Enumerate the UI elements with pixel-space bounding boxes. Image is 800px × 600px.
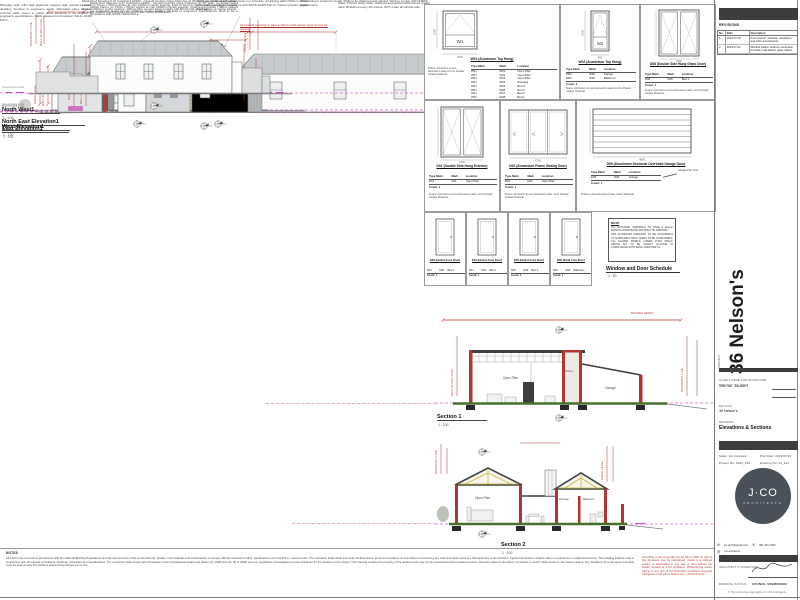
architect-signature	[750, 560, 794, 576]
signature-line	[772, 389, 796, 390]
dim-wallplate-level: WALL PLATE LEVEL	[40, 16, 43, 46]
elevation-north-west-drawing	[0, 0, 432, 124]
status-value: COUNCIL SUBMISSION	[752, 582, 787, 586]
house	[88, 41, 242, 93]
svg-text:600: 600	[598, 56, 603, 59]
table-rows: D04D04Bed 2	[469, 269, 507, 272]
door-d05-drawing	[518, 217, 542, 257]
dim-ridge-level: RIDGE LEVEL	[601, 448, 604, 480]
section-2: RIDGE LEVEL BOUNDARY LINE Open Plan Pass…	[435, 440, 715, 556]
table-rows: D08D08Bed 1	[645, 78, 713, 82]
svg-text:4800: 4800	[639, 157, 645, 161]
contact-phone: 081 461 0383	[759, 544, 775, 547]
cell-note: Finish to own discretion's taste, colour…	[581, 193, 661, 196]
svg-text:1500: 1500	[433, 29, 437, 35]
wall-cut	[519, 485, 522, 524]
footings	[466, 405, 645, 410]
wall-cut	[604, 489, 607, 524]
cell-title: D06 (Solid Core Door)	[551, 259, 591, 262]
furniture	[487, 394, 555, 403]
cell-table: Type MarkMarkLocation D01D01Open Plan Co…	[429, 175, 497, 189]
view-label: Section 1	[437, 414, 487, 421]
client-name: Werner Joubert	[719, 383, 748, 388]
notes-title: NOTES	[6, 551, 18, 555]
room-label: Open Plan	[503, 376, 518, 380]
ground-connector	[266, 403, 436, 404]
cell-note: Frame: Aluminium to own discretion's tas…	[429, 193, 497, 199]
room-label: Open Plan	[475, 496, 490, 500]
revisions-title: REVISIONS	[719, 23, 739, 27]
link-structure	[522, 470, 556, 523]
view-scale: 1 : 100	[3, 116, 13, 120]
table-rows: D01D01Open Plan	[429, 180, 497, 184]
scale-field: Scale: As indicated	[719, 454, 746, 458]
revision-rows: 12023-07-18Front dormer, windows, elevat…	[718, 36, 797, 54]
details-label: DETAILS	[719, 404, 732, 408]
room-label: Kitchen	[565, 370, 573, 373]
ground-level-tag: Ground Floor Level	[2, 86, 24, 89]
cell-table: D05D05Bed 3 Count: 1	[511, 269, 549, 277]
boundary-wall-right	[242, 68, 270, 93]
titleblock-bar-mid	[719, 368, 798, 372]
schedule-note-box: NOTE ALL EXTERNAL OPENINGS TO HAVE A 110…	[608, 218, 676, 262]
elevation-note-2: All retaining to engineer's detail. Wall…	[300, 0, 428, 8]
dim-flag: BUILDING HEIGHT	[631, 312, 654, 315]
section-1: BUILDING HEIGHT WALL PLATE LEVEL BOUNDAR…	[435, 296, 715, 442]
count: Count: 1	[511, 273, 549, 277]
schedule-cell-d08: 1500 D08 (Double Side Hung Glass Door) T…	[640, 4, 716, 100]
wall-cut	[639, 375, 643, 403]
cell-table: D06D06Bathroom Count: 1	[553, 269, 591, 277]
room-label: Garage	[605, 386, 616, 390]
dim-boundary: BOUNDARY LINE	[681, 348, 684, 392]
contact-row: ✉jco.arch@gmail.com ✆081 461 0383	[717, 543, 797, 547]
cell-note: Frame: Aluminium to own discretion's tas…	[645, 89, 713, 95]
titleblock-bar-fields	[719, 441, 798, 450]
schedule-cell-d01: 1600 D01 (Double Side Hung Exterior) Typ…	[424, 100, 500, 212]
table-row: D02D02Open Plan	[505, 180, 573, 184]
schedule-cell-d02: 2700 D02 (Aluminium Frame Sliding Door) …	[500, 100, 576, 212]
schedule-cell-w01: W1 1500 1500 W01 (Aluminium Top Hung) Ty…	[424, 4, 560, 100]
wall-cut	[579, 350, 582, 403]
door-d09-drawing: 4800	[589, 105, 699, 161]
social-icon: ＠	[717, 549, 720, 554]
plot-date-field: Plot Date: 2023/07/22	[760, 454, 791, 458]
cell-table: D03D03Bed 1 Count: 1	[427, 269, 465, 277]
level-marker-top	[479, 449, 491, 455]
schedule-cell-d09: 4800 D09 (Aluminium Sectional Overhead G…	[576, 100, 716, 212]
cell-note: Frame: Aluminium to own discretion's tas…	[505, 193, 573, 199]
table-rows: D09D09Garage	[591, 176, 661, 180]
count: Count: 1	[469, 273, 507, 277]
table-rows: D03D03Bed 1	[427, 269, 465, 272]
view-label: West Elevation1	[2, 124, 70, 131]
jco-architects-logo: J·CO ARCHITECTS	[735, 468, 791, 524]
wall-cut	[455, 485, 458, 524]
cell-table: Type MarkMarkLocation D08D08Bed 1 Count:…	[645, 73, 713, 87]
table-row: D08D08Bed 1	[645, 78, 713, 82]
furniture	[526, 514, 544, 523]
cell-title: D01 (Double Side Hung Exterior)	[425, 165, 499, 169]
drawing-no-field: Drawing No: 03_101	[760, 461, 789, 465]
tree	[437, 506, 449, 522]
level-marker-top	[556, 327, 568, 333]
cell-title: D02 (Aluminium Frame Sliding Door)	[501, 165, 575, 169]
status-label: DRAWING STATUS	[719, 582, 747, 586]
leader-text: Garage Plan Cont.	[678, 169, 714, 172]
drawing-sheet: Metal Roof Sheeting 0.47 Colorbond AZ200…	[0, 0, 800, 600]
section-2-drawing	[435, 440, 715, 540]
count: Count: 1	[429, 184, 497, 189]
svg-text:W1: W1	[457, 39, 464, 44]
cell-note: Frame: Aluminium to own discretion's tas…	[566, 87, 636, 93]
boundary-wall-left	[36, 72, 98, 93]
logo-subtext: ARCHITECTS	[743, 501, 783, 505]
general-notes-body: All work to be executed in accordance wi…	[6, 557, 634, 568]
schedule-cell-d06: D06 (Solid Core Door) D06D06Bathroom Cou…	[550, 212, 592, 286]
wall-cut	[555, 489, 558, 524]
structure	[453, 350, 667, 410]
project-name: 36 Nelson's	[727, 262, 749, 374]
count: Count: 1	[553, 273, 591, 277]
project-label: PROJECT	[717, 344, 721, 368]
count: Count: 1	[427, 273, 465, 277]
door-d08-drawing: 1500	[654, 8, 704, 62]
sheet-bottom-border	[0, 597, 800, 598]
level-marker-top	[151, 27, 163, 33]
revision-row: 22023-07-22Window added, bedroom amended…	[718, 45, 797, 54]
cell-table: Type MarkMarkLocation D02D02Open Plan Co…	[505, 175, 573, 189]
dim-boundary: BOUNDARY LINE	[30, 14, 33, 46]
titleblock-divider	[714, 0, 715, 600]
revision-table: No.DateDescription 12023-07-18Front dorm…	[717, 30, 798, 55]
room-label: Passage	[559, 498, 569, 501]
dim-boundary: BOUNDARY LINE	[435, 446, 438, 474]
cell-title: D05 (Hollow Core Door)	[509, 259, 549, 262]
table-row: D01D01Open Plan	[429, 180, 497, 184]
email-icon: ✉	[717, 543, 720, 547]
leader-line	[663, 173, 677, 177]
schedule-cell-d03: D03 (Hollow Core Door) D03D03Bed 1 Count…	[424, 212, 466, 286]
cell-table: Type MarkMarkLocation D09D09Garage Count…	[591, 171, 661, 185]
table-rows: D02D02Open Plan	[505, 180, 573, 184]
cell-title: W01 (Aluminium Top Hung)	[425, 58, 559, 62]
cell-title: D08 (Double Side Hung Glass Door)	[641, 63, 715, 67]
table-row: D03D03Bed 1	[427, 269, 465, 272]
fixtures	[590, 512, 603, 523]
door-d01-drawing: 1600	[436, 105, 490, 163]
table-row: D05D05Bed 3	[511, 269, 549, 272]
schedule-title: Window and Door Schedule	[606, 266, 680, 273]
note-line-2: SPS ALUMINIUM WINDOWS TO BE ACCORDING TO…	[611, 233, 673, 249]
count: Count: 1	[505, 184, 573, 189]
signature-line	[772, 397, 796, 398]
room-label: Bathroom	[583, 498, 594, 501]
contact-email: jco.arch@gmail.com	[724, 544, 748, 547]
cell-table: D04D04Bed 2 Count: 1	[469, 269, 507, 277]
schedule-scale: 1 : 50	[608, 274, 616, 278]
drawing-label: DRAWING	[719, 420, 734, 424]
cell-title: D04 (Hollow Core Door)	[467, 259, 507, 262]
elevation-north-west: All retaining to engineer's detail. Wall…	[0, 0, 432, 124]
window-w02-drawing: W2 1500 600	[579, 9, 619, 59]
table-row: D06D06Bathroom	[553, 269, 591, 272]
door-d02-drawing: 2700	[507, 108, 571, 163]
titleblock-copyright: © The exclusive copyright of J.CO Archit…	[716, 591, 798, 594]
count: Count: 1	[645, 82, 713, 87]
boundary-wall-cut	[621, 504, 624, 524]
level-marker-bottom	[556, 415, 568, 421]
count: Count: 2	[566, 81, 636, 86]
level-marker-bottom	[151, 103, 163, 109]
wall-cut	[562, 350, 565, 403]
notes-divider	[0, 548, 714, 549]
svg-text:W2: W2	[597, 41, 604, 46]
table-rows: W01W01Open PlanW01W02Open PlanW01W03Open…	[471, 70, 557, 104]
view-scale: 1 : 100	[438, 423, 448, 427]
schedule-cell-w02: W2 1500 600 W02 (Aluminium Top Hung) Typ…	[560, 4, 640, 100]
svg-text:1600: 1600	[459, 160, 465, 163]
svg-text:2700: 2700	[535, 159, 541, 163]
view-scale: 1 : 100	[502, 551, 512, 555]
view-scale: 1 : 100	[3, 133, 13, 137]
furniture	[467, 507, 493, 521]
level-marker-bottom	[479, 531, 491, 537]
view-label: North West1	[2, 107, 60, 114]
revision-row: 12023-07-18Front dormer, windows, elevat…	[718, 36, 797, 45]
wall-cut	[578, 496, 581, 524]
titleblock-bar-top	[719, 8, 798, 20]
contact-social: jco.architects	[724, 550, 740, 553]
contact-row-2: ＠jco.architects	[717, 549, 740, 554]
dim-wallplate-level: WALL PLATE LEVEL	[451, 352, 454, 396]
table-rows: D06D06Bathroom	[553, 269, 591, 272]
footings	[452, 526, 625, 531]
note-title: NOTE	[611, 221, 673, 225]
details-value: 36 Nelson's	[719, 409, 738, 413]
table-rows: W02W09GarageW02W10Bathroom	[566, 73, 636, 81]
signature-underline	[748, 577, 798, 578]
table-row: D09D09Garage	[591, 176, 661, 180]
wall-cut	[469, 350, 473, 403]
count: Count: 1	[591, 180, 661, 185]
section-1-drawing	[435, 296, 715, 428]
window-w01-drawing: W1 1500 1500	[433, 9, 487, 59]
drawing-title: Elevations & Sections	[719, 425, 771, 431]
door-d06-drawing	[560, 217, 584, 257]
door-d03-drawing	[434, 217, 458, 257]
ground-connector	[292, 523, 436, 524]
cell-title: D09 (Aluminium Sectional Overhead Garage…	[577, 163, 715, 167]
project-no-field: Project No: 2023_156	[719, 461, 750, 465]
cell-table: Type MarkMarkLocation W02W09GarageW02W10…	[566, 68, 636, 86]
note-line-1: ALL EXTERNAL OPENINGS TO HAVE A 110mm WI…	[611, 226, 673, 232]
table-rows: D05D05Bed 3	[511, 269, 549, 272]
client-label: CLIENT NAME FOR SIGNATURE	[719, 378, 766, 382]
door-d04-drawing	[476, 217, 500, 257]
cell-title: W02 (Aluminium Top Hung)	[561, 61, 639, 65]
svg-text:1500: 1500	[581, 30, 585, 36]
schedule-cell-d05: D05 (Hollow Core Door) D05D05Bed 3 Count…	[508, 212, 550, 286]
cell-title: D03 (Hollow Core Door)	[425, 259, 465, 262]
door-opening	[523, 382, 534, 403]
cell-note: Frame: Aluminium to own discretion's tas…	[428, 67, 468, 76]
schedule-cell-d04: D04 (Hollow Core Door) D04D04Bed 2 Count…	[466, 212, 508, 286]
sheet-right-border	[797, 0, 798, 600]
table-row: W02W10Bathroom	[566, 77, 636, 81]
table-row: D04D04Bed 2	[469, 269, 507, 272]
copyright-note: According to the Copyright Act No 98 of …	[642, 556, 712, 576]
phone-icon: ✆	[752, 543, 755, 547]
logo-text: J·CO	[748, 487, 778, 499]
dim-ridge-level: RIDGE LEVEL	[244, 18, 247, 52]
